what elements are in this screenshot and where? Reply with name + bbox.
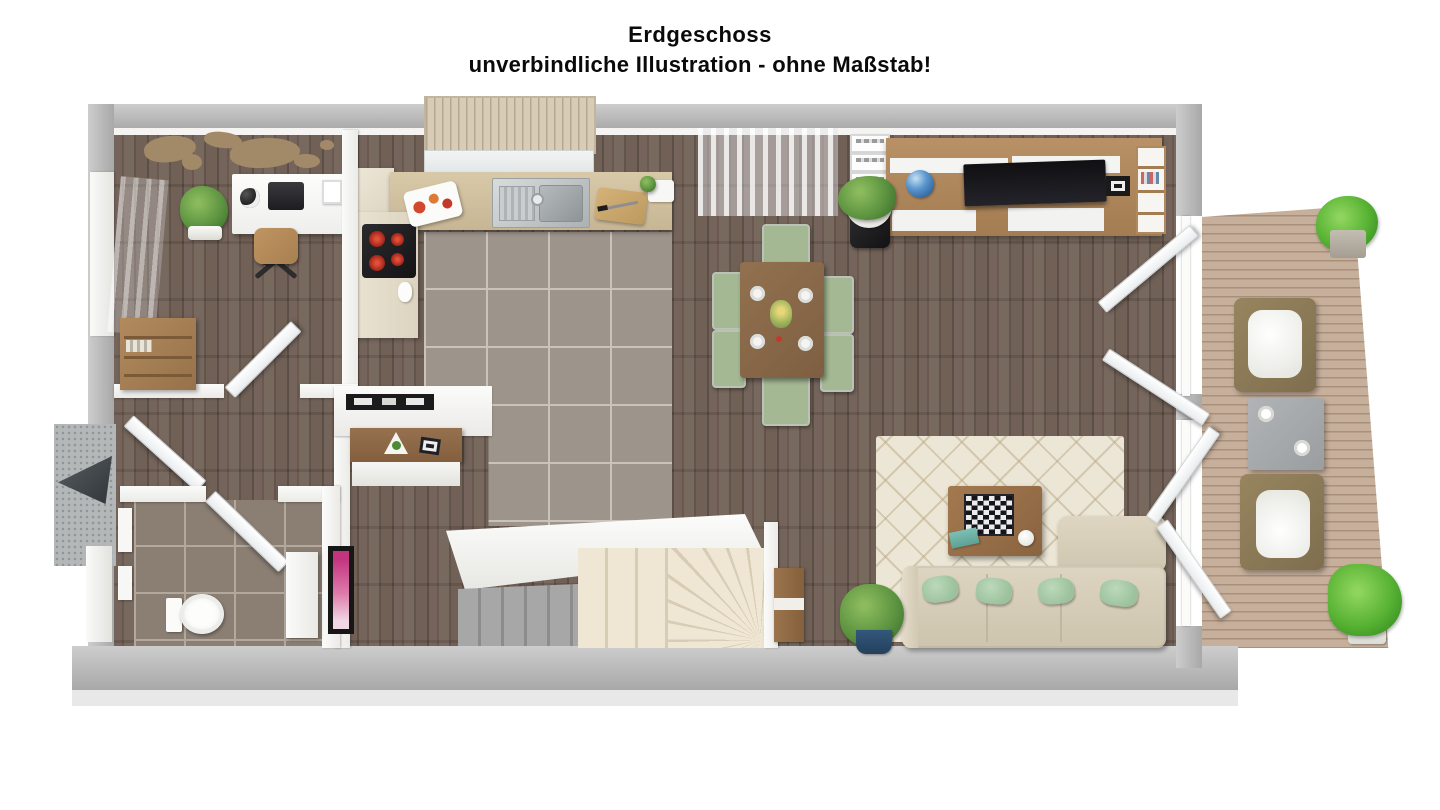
bath-shelf bbox=[118, 566, 132, 600]
terrace-door-frame-lower bbox=[1182, 420, 1190, 626]
dinner-plate bbox=[750, 334, 765, 349]
sofa-pillow-3 bbox=[1037, 576, 1075, 605]
stairs-winder bbox=[668, 548, 764, 648]
table-decor-red bbox=[776, 336, 782, 342]
dinner-plate bbox=[798, 336, 813, 351]
terrace-plant-bottom bbox=[1328, 564, 1402, 636]
decor-black-frame bbox=[1106, 176, 1130, 196]
terrace-armchair-1-cushion bbox=[1248, 310, 1302, 378]
tv-unit-door-right bbox=[1008, 208, 1104, 231]
floor-plan bbox=[0, 0, 1440, 810]
hall-sideboard-top bbox=[350, 428, 462, 462]
bath-art-frame bbox=[328, 546, 354, 634]
outer-wall-right-upper bbox=[1176, 104, 1202, 216]
kitchen-cutting-board bbox=[594, 187, 648, 225]
office-chair-seat bbox=[254, 228, 298, 264]
stairs-gray-lower bbox=[458, 584, 578, 646]
terrace-armchair-2-cushion bbox=[1256, 490, 1310, 558]
dinner-plate bbox=[798, 288, 813, 303]
stair-side-cabinet bbox=[774, 568, 804, 642]
outer-wall-top bbox=[96, 104, 1202, 130]
hall-wardrobe bbox=[120, 318, 196, 390]
kitchen-sink bbox=[492, 178, 590, 228]
desk-globe bbox=[240, 188, 260, 208]
kitchen-herb-plant bbox=[640, 176, 656, 192]
hall-sideboard-front bbox=[352, 462, 460, 486]
outer-wall-bottom-apron bbox=[72, 690, 1238, 706]
bath-radiator bbox=[118, 508, 132, 552]
dining-chair-east-1 bbox=[820, 276, 854, 334]
terrace-cup-2 bbox=[1294, 440, 1310, 456]
terrace-cup-1 bbox=[1258, 406, 1274, 422]
desk-printer bbox=[268, 182, 304, 210]
toilet-bowl bbox=[180, 594, 224, 634]
dining-chair-east-2 bbox=[820, 334, 854, 392]
wall-office-kitchen bbox=[342, 130, 358, 398]
floor-plan-illustration: Erdgeschoss unverbindliche Illustration … bbox=[0, 0, 1440, 810]
dining-chair-south bbox=[762, 374, 810, 426]
bath-wall-top-left bbox=[120, 486, 206, 502]
wall-picture-2 bbox=[850, 153, 890, 172]
coffee-table-bowl bbox=[1018, 530, 1034, 546]
tv-unit-door-left bbox=[892, 210, 976, 231]
window-left-lower bbox=[86, 546, 112, 642]
decor-blue-ball bbox=[906, 170, 934, 198]
living-plant-blue-pot bbox=[856, 630, 892, 654]
kitchen-towel-roll bbox=[398, 282, 412, 302]
tv-screen bbox=[963, 160, 1106, 207]
wall-picture-1 bbox=[850, 134, 890, 153]
dinner-plate bbox=[750, 286, 765, 301]
sofa-pillow-2 bbox=[975, 576, 1013, 605]
bath-vanity bbox=[286, 552, 318, 638]
sideboard-decor-frame bbox=[419, 437, 441, 456]
kitchen-window-blind bbox=[424, 96, 596, 154]
sofa-backrest bbox=[1058, 516, 1166, 572]
dining-window-curtain bbox=[698, 128, 838, 216]
stairs-straight-run bbox=[578, 548, 668, 648]
stool-plant bbox=[838, 176, 896, 220]
desk-photo-frame bbox=[322, 180, 342, 204]
office-plant-pot bbox=[188, 226, 222, 240]
table-centerpiece bbox=[770, 300, 792, 328]
wall-niche-display bbox=[346, 394, 434, 410]
kitchen-cooktop bbox=[362, 224, 416, 278]
outer-wall-bottom bbox=[72, 646, 1238, 690]
outer-wall-right-lower bbox=[1176, 626, 1202, 668]
dining-table bbox=[740, 262, 824, 378]
terrace-plant-top-pot bbox=[1330, 230, 1366, 258]
tv-unit-side-shelves bbox=[1136, 146, 1166, 234]
